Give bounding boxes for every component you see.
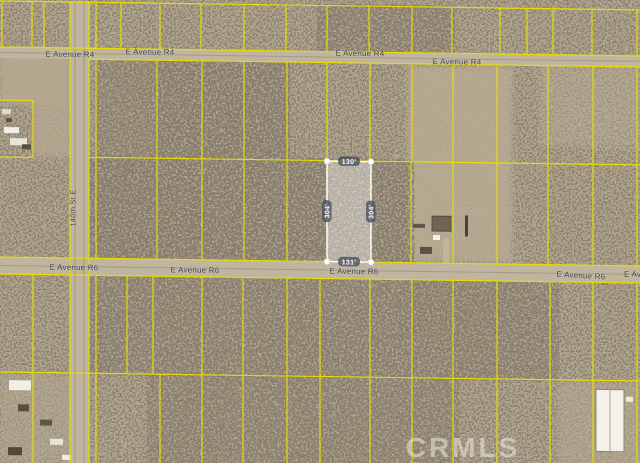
building-rect	[420, 247, 432, 254]
subject-parcel: 130' 131' 304' 304'	[322, 156, 376, 267]
dim-value: 304'	[369, 204, 376, 219]
dense-brush	[160, 60, 287, 160]
dim-label-right: 304'	[366, 201, 376, 223]
building-rect	[413, 224, 425, 228]
corner-dot	[324, 158, 330, 164]
corner-dot	[368, 159, 374, 165]
satellite-parcel-map: E Avenue R4 E Avenue R4 E Avenue R4 E Av…	[0, 0, 640, 463]
road-label-r4: E Avenue R4	[46, 50, 95, 60]
road-140th-st	[70, 1, 89, 463]
dense-brush	[320, 4, 452, 53]
road-label-r4: E Avenue R4	[336, 49, 385, 59]
crmls-watermark: CRMLS	[406, 432, 521, 463]
building-rect	[50, 439, 63, 445]
building-rect	[4, 127, 19, 133]
building-rect	[40, 420, 52, 426]
clearing	[33, 102, 70, 157]
dim-label-left: 304'	[322, 200, 332, 222]
dense-brush	[96, 59, 157, 158]
road-label-r4: E Avenue R4	[126, 47, 175, 57]
subject-parcel-highlight	[327, 161, 371, 262]
dim-value: 131'	[342, 259, 357, 266]
building-rect	[6, 118, 12, 122]
building-rect	[433, 235, 440, 240]
road-label-r6: E Avenue R6	[171, 265, 220, 275]
map-canvas: E Avenue R4 E Avenue R4 E Avenue R4 E Av…	[0, 0, 640, 463]
road-label-140th-st: 140th St E	[69, 189, 78, 226]
driveway	[443, 238, 449, 263]
road-label-r4: E Avenue R4	[433, 57, 482, 67]
building-rect	[626, 397, 633, 402]
building-rect	[22, 144, 31, 149]
corner-dot	[368, 259, 374, 265]
dim-label-bottom: 131'	[338, 257, 360, 267]
dim-value: 130'	[342, 159, 357, 166]
road-label-r6-clipped: E Avenue R6	[624, 270, 640, 280]
road-label-r6: E Avenue R6	[50, 263, 99, 273]
building-rect	[9, 380, 31, 390]
clearing	[540, 66, 640, 147]
dim-value: 304'	[325, 204, 332, 219]
building-rect	[2, 109, 11, 114]
building-rect	[8, 447, 22, 455]
dense-brush	[96, 275, 550, 379]
corner-dot	[324, 259, 330, 265]
dim-label-top: 130'	[338, 156, 360, 166]
house	[432, 216, 451, 231]
building-rect	[465, 215, 468, 236]
road-label-r6: E Avenue R6	[330, 267, 379, 277]
building-rect	[10, 138, 27, 145]
building-rect	[18, 404, 29, 411]
